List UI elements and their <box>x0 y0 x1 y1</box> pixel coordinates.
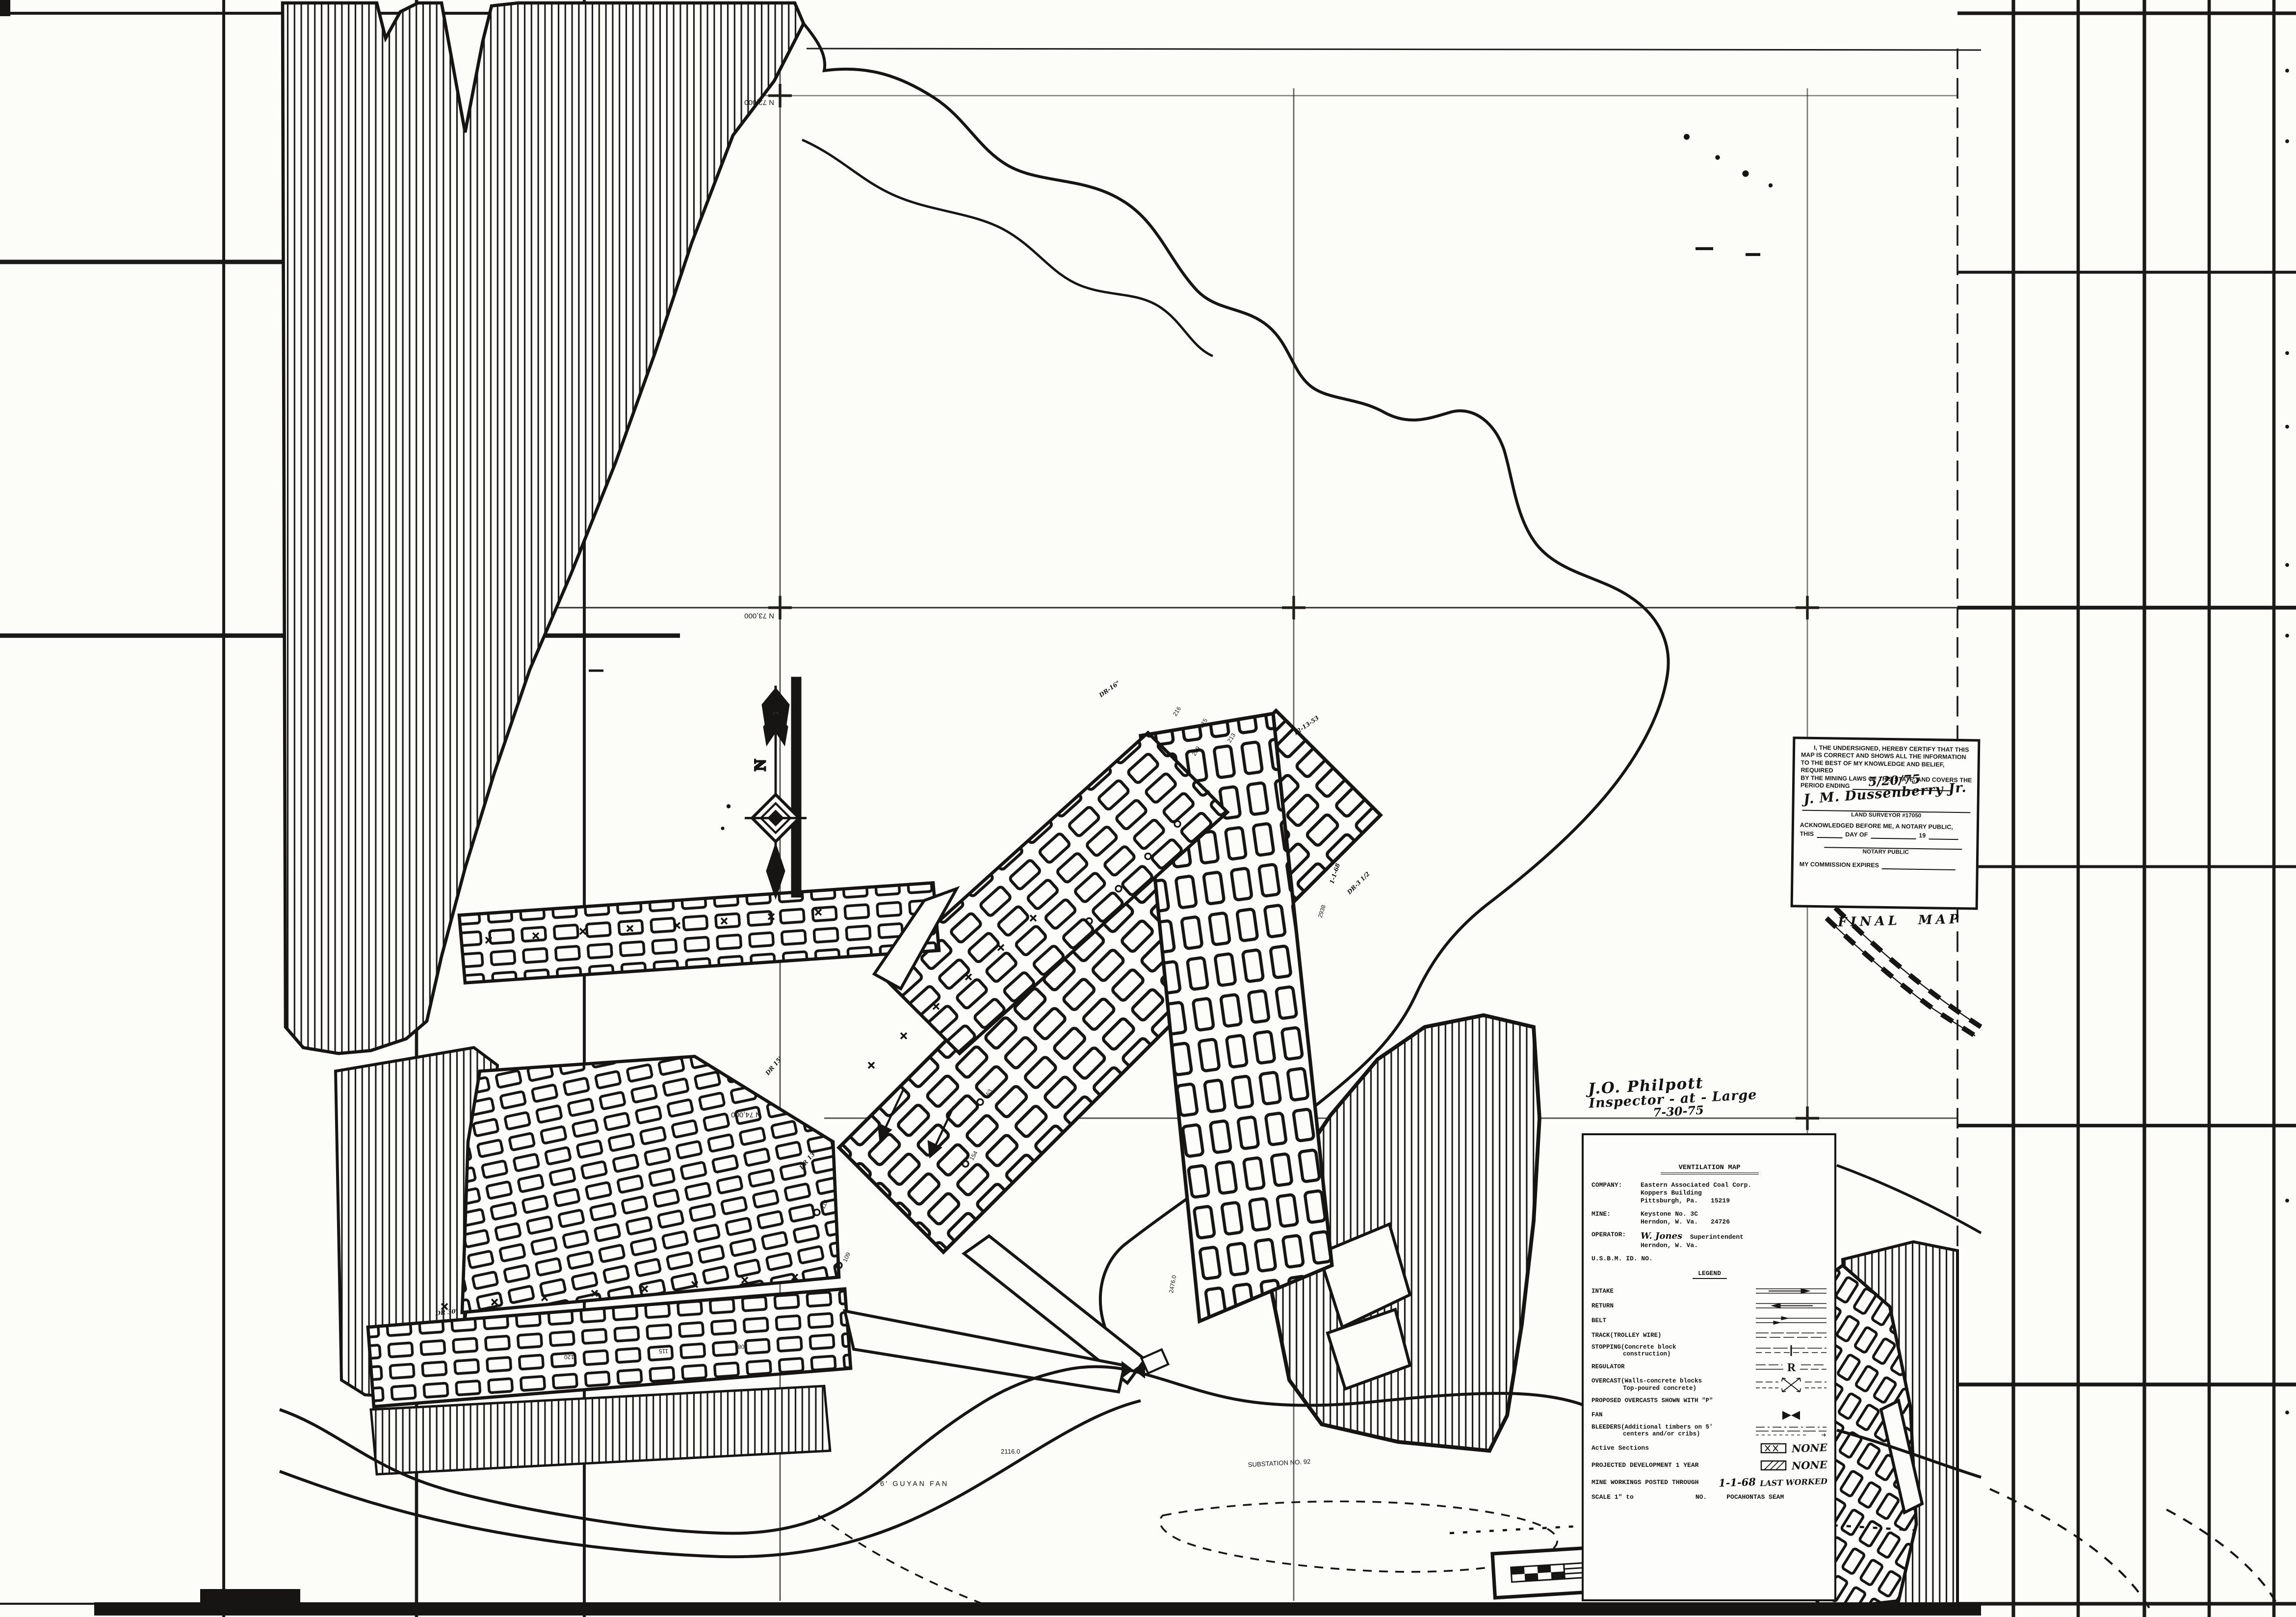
active-sections-symbol-icon <box>1760 1442 1788 1454</box>
workings-posted-label: MINE WORKINGS POSTED THROUGH <box>1592 1479 1698 1487</box>
label-2938: 2938 <box>1317 904 1328 918</box>
legend-row-regulator: REGULATOR R <box>1592 1360 1827 1375</box>
regulator-letter: R <box>1787 1361 1796 1374</box>
year-blank <box>1929 833 1958 840</box>
acknowledged-line: ACKNOWLEDGED BEFORE ME, A NOTARY PUBLIC, <box>1800 821 1972 831</box>
bleeders-symbol-icon <box>1754 1424 1827 1437</box>
label-guyan-fan: 6' GUYAN FAN <box>880 1480 949 1488</box>
projected-development-symbol-icon <box>1760 1460 1788 1471</box>
north-arrow-head <box>767 844 784 897</box>
legend-label-bleeders-2: centers and/or cribs) <box>1592 1431 1713 1437</box>
commission-blank <box>1882 863 1956 870</box>
scale-no-label: NO. <box>1696 1493 1707 1501</box>
label-p108: 108 <box>738 1343 748 1350</box>
operator-row: OPERATOR: W. Jones Superintendent Herndo… <box>1592 1231 1827 1250</box>
label-e216: 216 <box>1172 705 1183 717</box>
label-date1: 12-13-53 <box>1292 714 1320 737</box>
projected-development-value-handwritten: NONE <box>1792 1459 1828 1472</box>
legend-row-overcast: OVERCAST(Walls-concrete blocksTop-poured… <box>1592 1377 1827 1393</box>
legend-row-track: TRACK(TROLLEY WIRE) <box>1592 1329 1827 1342</box>
legend-label-stopping-2: construction) <box>1592 1351 1676 1357</box>
return-symbol-icon <box>1754 1300 1827 1312</box>
track-symbol-icon <box>1754 1329 1827 1342</box>
fan-symbol-icon <box>1754 1409 1827 1422</box>
grid-label-n72: N 72,000 <box>744 98 774 106</box>
label-p115: 115 <box>659 1348 668 1355</box>
legend-label-intake: INTAKE <box>1592 1288 1614 1295</box>
last-worked-handwritten: LAST WORKED <box>1760 1476 1827 1488</box>
active-sections-row: Active Sections NONE <box>1592 1442 1827 1455</box>
legend-label-overcast: OVERCAST(Walls-concrete blocks <box>1592 1378 1702 1384</box>
grid-label-n73: N 73,000 <box>744 612 774 620</box>
panel-upper-mains <box>459 883 939 983</box>
operator-title: Superintendent <box>1690 1233 1744 1241</box>
mine-city: Herndon, W. Va. <box>1641 1218 1698 1226</box>
label-dr16: DR-16" <box>1097 679 1121 699</box>
surveyor-certificate-box: I, THE UNDERSIGNED, HEREBY CERTIFY THAT … <box>1791 736 1981 910</box>
mine-label: MINE: <box>1592 1210 1641 1226</box>
legend-row-proposed-overcasts: PROPOSED OVERCASTS SHOWN WITH "P" <box>1592 1395 1827 1407</box>
legend-row-intake: INTAKE <box>1592 1285 1827 1298</box>
legend-label-fan: FAN <box>1592 1411 1603 1418</box>
boundary-below-legend <box>1837 1165 1981 1233</box>
legend-label-overcast-2: Top-poured concrete) <box>1592 1385 1702 1392</box>
overcast-symbol-icon <box>1754 1377 1827 1393</box>
legend-row-stopping: STOPPING(Concrete blockconstruction) <box>1592 1344 1827 1358</box>
projected-development-row: PROJECTED DEVELOPMENT 1 YEAR NONE <box>1592 1459 1827 1472</box>
label-s109: 109 <box>841 1251 852 1263</box>
scale-prefix-label: SCALE 1" to <box>1592 1493 1634 1501</box>
legend-label-stopping: STOPPING(Concrete block <box>1592 1344 1676 1351</box>
commission-expires-label: MY COMMISSION EXPIRES <box>1800 861 1879 869</box>
stopping-symbol-icon <box>1754 1344 1827 1357</box>
year-prefix: 19 <box>1919 832 1926 840</box>
label-elevation: 2116.0 <box>1001 1448 1020 1455</box>
title-and-legend-box: VENTILATION MAP COMPANY: Eastern Associa… <box>1582 1133 1836 1601</box>
grid-label-n74: N 74,000 <box>731 1110 761 1119</box>
mine-id-number: 24726 <box>1711 1218 1730 1226</box>
month-blank <box>1871 833 1916 839</box>
dashed-line-bottom <box>818 1515 1010 1614</box>
legend-row-fan: FAN <box>1592 1409 1827 1422</box>
scanned-mine-map-sheet: N N 72,000 N <box>0 0 2296 1617</box>
projected-development-label: PROJECTED DEVELOPMENT 1 YEAR <box>1592 1461 1698 1469</box>
north-arrow: N <box>745 677 807 898</box>
day-blank <box>1817 832 1842 838</box>
usbm-id-label: U.S.B.M. ID. NO. <box>1592 1255 1827 1263</box>
scale-row: SCALE 1" to NO. POCAHONTAS SEAM <box>1592 1493 1827 1501</box>
mine-row: MINE: Keystone No. 3C Herndon, W. Va.247… <box>1592 1210 1827 1226</box>
legend-heading: LEGEND <box>1693 1270 1727 1279</box>
legend-label-bleeders: BLEEDERS(Additional timbers on 5' <box>1592 1424 1713 1431</box>
label-p120: 120 <box>564 1354 574 1360</box>
north-letter: N <box>752 759 769 771</box>
company-row: COMPANY: Eastern Associated Coal Corp. K… <box>1592 1181 1827 1205</box>
dashed-arc-br-2 <box>2166 1510 2278 1607</box>
belt-symbol-icon <box>1754 1314 1827 1327</box>
legend-row-return: RETURN <box>1592 1300 1827 1312</box>
company-label: COMPANY: <box>1592 1181 1641 1205</box>
this-label: THIS <box>1800 830 1814 838</box>
panel-lower-left-rooms <box>462 1056 839 1312</box>
active-sections-value-handwritten: NONE <box>1792 1441 1828 1455</box>
company-building: Koppers Building <box>1641 1189 1827 1197</box>
legend-label-regulator: REGULATOR <box>1592 1363 1625 1370</box>
operator-label: OPERATOR: <box>1592 1231 1641 1250</box>
company-city: Pittsburgh, Pa. <box>1641 1197 1698 1204</box>
north-arrow-bar <box>791 677 802 898</box>
seam-name-label: POCAHONTAS SEAM <box>1726 1493 1784 1501</box>
legend-label-belt: BELT <box>1592 1317 1606 1324</box>
outcrop-inner <box>802 140 1213 356</box>
legend-label-proposed-overcasts: PROPOSED OVERCASTS SHOWN WITH "P" <box>1592 1397 1713 1404</box>
map-title: VENTILATION MAP <box>1661 1164 1759 1174</box>
posted-date-handwritten: 1-1-68 <box>1719 1475 1756 1489</box>
day-of-label: DAY OF <box>1845 831 1868 839</box>
company-zip: 15219 <box>1711 1197 1730 1204</box>
operator-city: Herndon, W. Va. <box>1641 1242 1827 1250</box>
company-name: Eastern Associated Coal Corp. <box>1641 1181 1827 1189</box>
intake-symbol-icon <box>1754 1285 1827 1298</box>
mine-name: Keystone No. 3C <box>1641 1210 1827 1218</box>
active-sections-label: Active Sections <box>1592 1444 1649 1452</box>
label-2476: 2476.0 <box>1168 1275 1177 1294</box>
operator-name-handwritten: W. Jones <box>1641 1231 1682 1241</box>
legend-row-belt: BELT <box>1592 1314 1827 1327</box>
legend-label-track: TRACK(TROLLEY WIRE) <box>1592 1332 1662 1339</box>
regulator-symbol-icon: R <box>1754 1360 1827 1375</box>
label-substation: SUBSTATION NO. 92 <box>1248 1458 1310 1468</box>
legend-row-bleeders: BLEEDERS(Additional timbers on 5'centers… <box>1592 1424 1827 1438</box>
workings-posted-row: MINE WORKINGS POSTED THROUGH 1-1-68 LAST… <box>1592 1476 1827 1489</box>
label-dr3: DR-3 1/2 <box>1346 870 1371 896</box>
legend-label-return: RETURN <box>1592 1303 1614 1309</box>
